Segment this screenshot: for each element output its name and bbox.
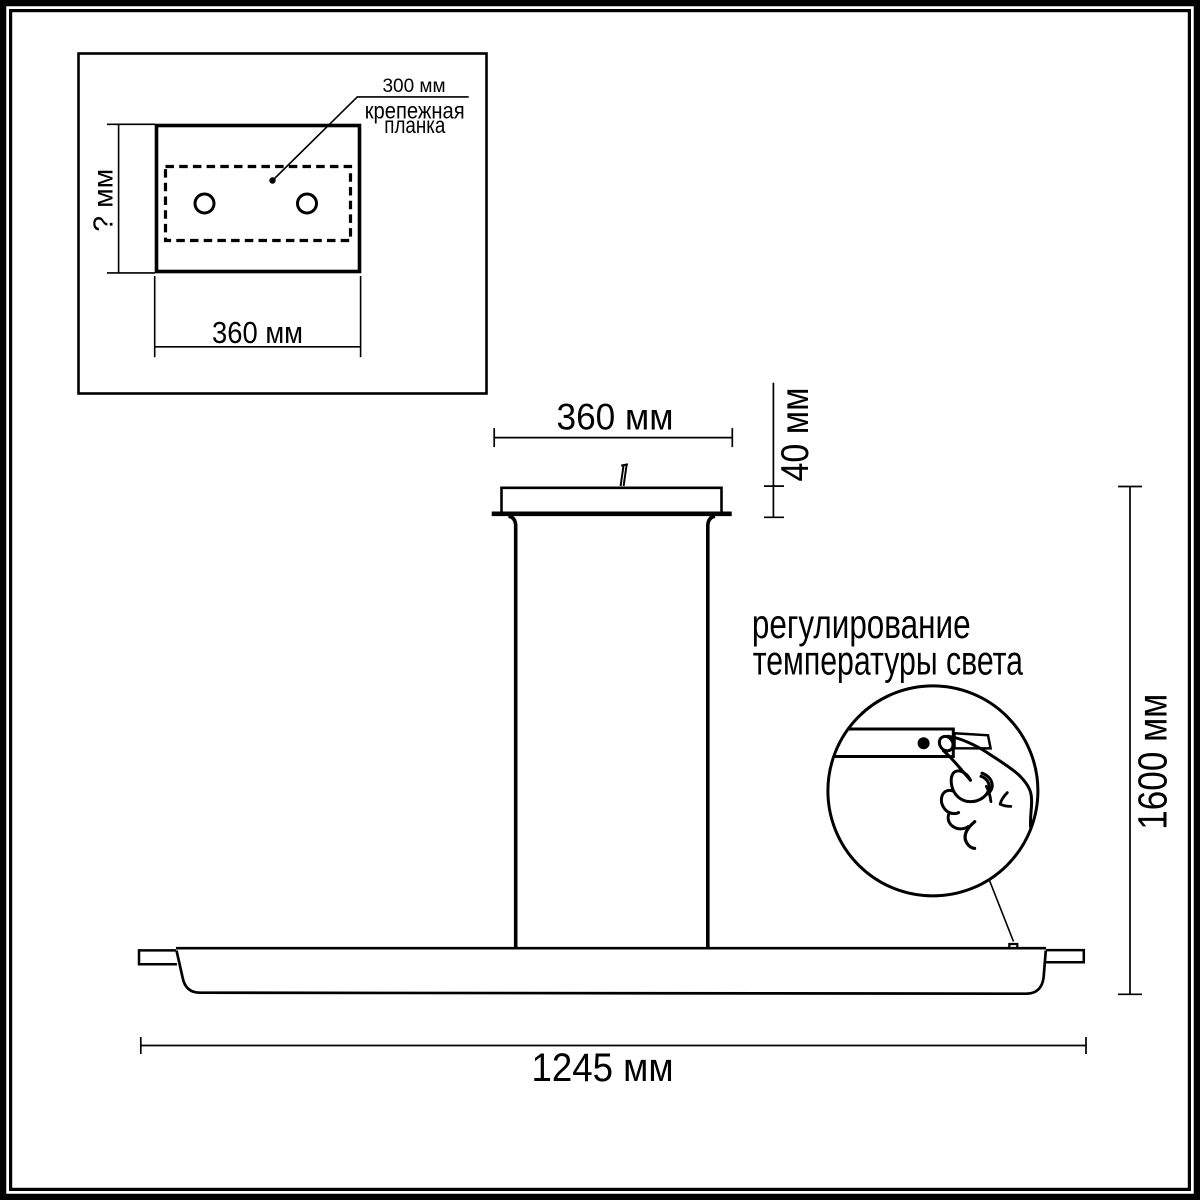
svg-text:360 мм: 360 мм [557,397,674,438]
svg-text:температуры света: температуры света [753,638,1023,684]
svg-text:1600 мм: 1600 мм [1130,694,1176,830]
svg-text:360 мм: 360 мм [212,315,303,350]
svg-text:40 мм: 40 мм [774,388,817,482]
svg-text:1245 мм: 1245 мм [532,1046,674,1090]
svg-text:300 мм: 300 мм [383,76,446,97]
svg-text:планка: планка [384,112,445,138]
svg-text:? мм: ? мм [87,169,118,232]
